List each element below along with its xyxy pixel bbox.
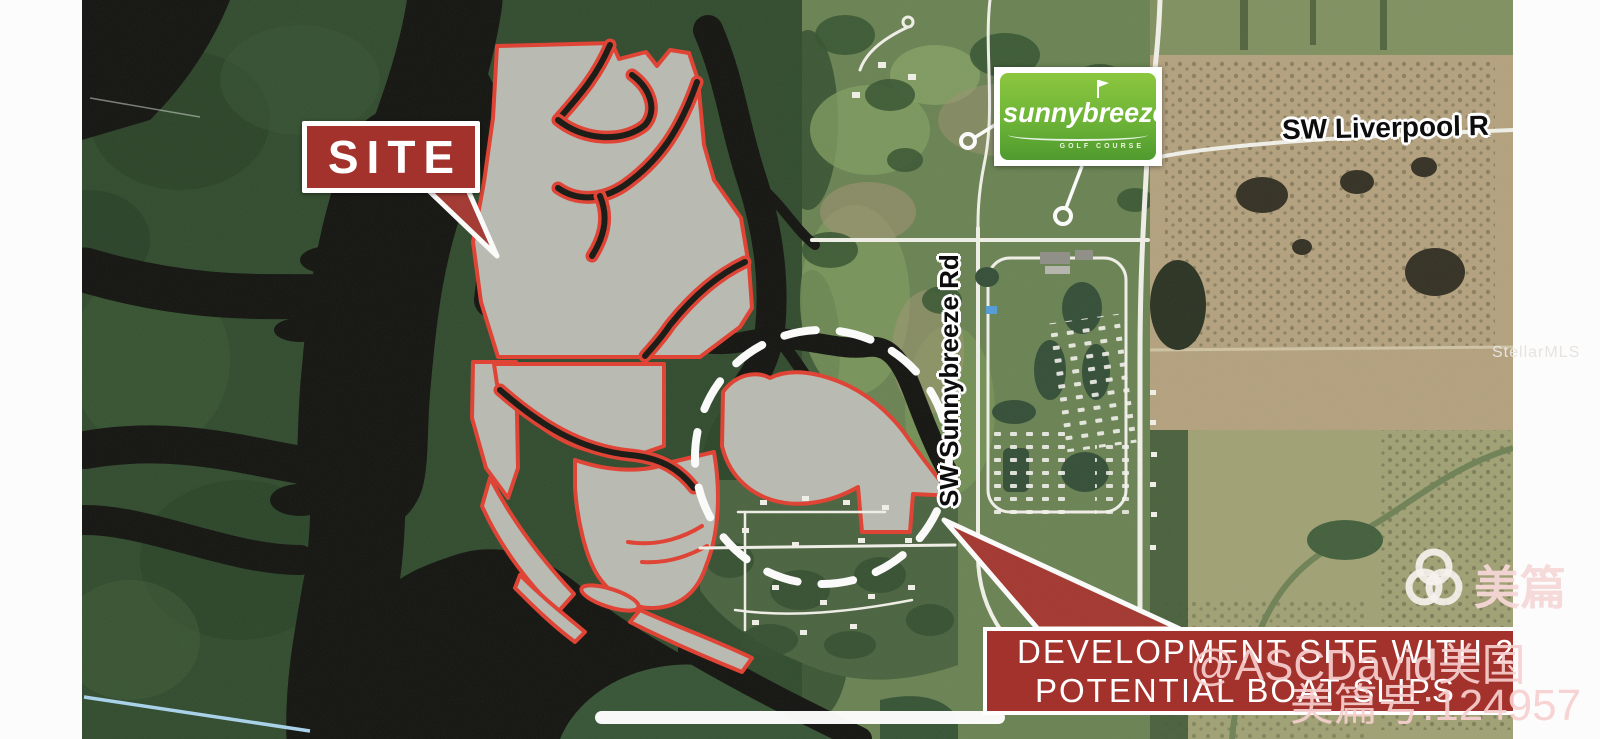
watermark-stellar-mls: StellarMLS bbox=[1492, 344, 1580, 362]
sunnybreeze-logo-card: sunnybreeze GOLF COURSE bbox=[994, 67, 1162, 166]
road-label-sunnybreeze: SW Sunnybreeze Rd bbox=[934, 254, 965, 507]
site-callout-label: SITE bbox=[320, 130, 462, 184]
logo-title: sunnybreeze bbox=[1003, 97, 1153, 129]
sunnybreeze-logo: sunnybreeze GOLF COURSE bbox=[1000, 73, 1156, 160]
logo-subtitle: GOLF COURSE bbox=[1060, 143, 1144, 150]
right-white-margin bbox=[1513, 0, 1600, 739]
progress-bar bbox=[595, 711, 1005, 724]
road-label-liverpool: SW Liverpool R bbox=[1282, 110, 1490, 146]
logo-swoosh bbox=[1008, 129, 1148, 141]
listing-photo-frame: SITE sunnybreeze GOLF COURSE SW Liverpoo… bbox=[0, 0, 1600, 739]
meipian-logo-icon bbox=[1404, 547, 1468, 616]
site-callout: SITE bbox=[302, 121, 480, 193]
watermark-meipian-id: 美篇号:124957 bbox=[1290, 669, 1581, 733]
left-white-margin bbox=[0, 0, 82, 739]
watermark-meipian-text: 美篇 bbox=[1474, 552, 1566, 618]
